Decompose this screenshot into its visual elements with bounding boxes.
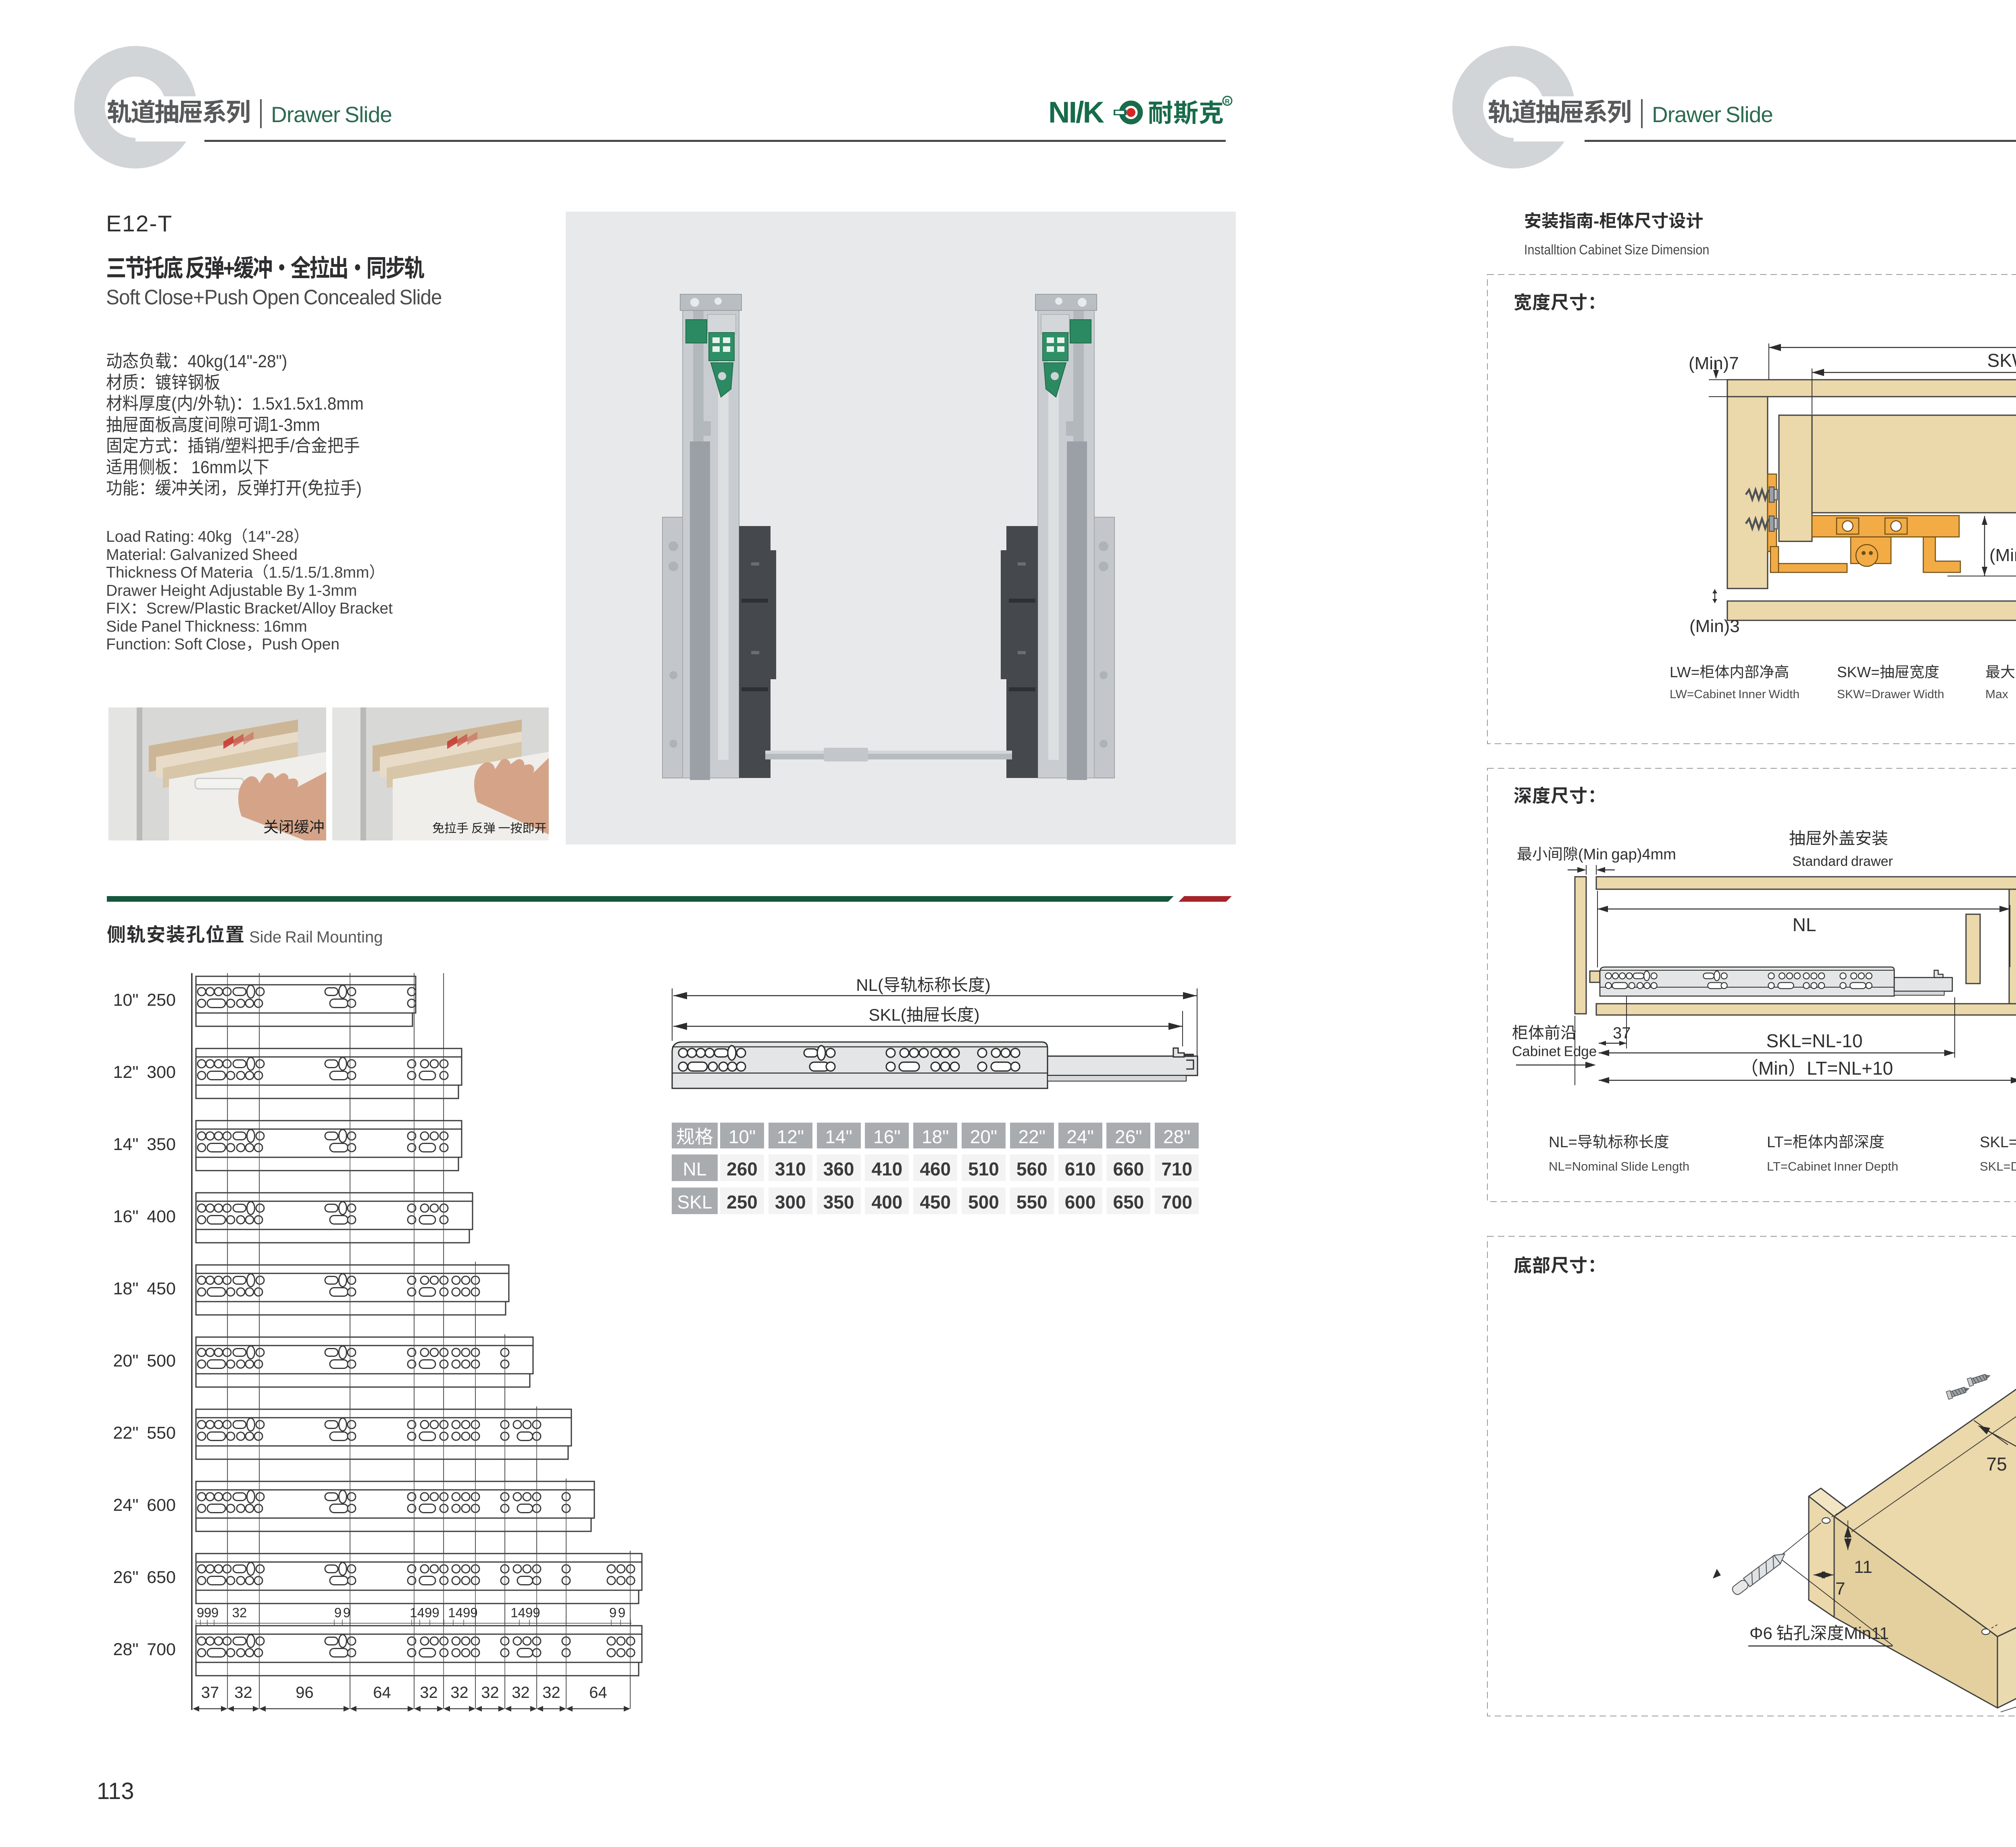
svg-text:Φ6 钻孔深度Min11: Φ6 钻孔深度Min11 [1749, 1620, 1889, 1644]
svg-text:7: 7 [1835, 1574, 1845, 1600]
svg-text:11: 11 [1854, 1552, 1872, 1578]
svg-text:75: 75 [1986, 1450, 2007, 1476]
